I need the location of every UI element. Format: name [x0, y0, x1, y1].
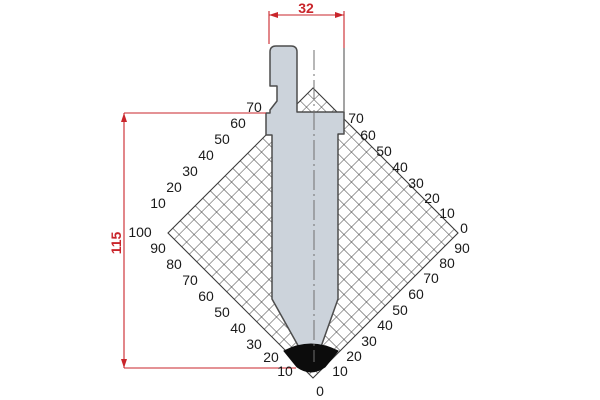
drawing-canvas: 7060504030201010090807060504030201001020… [0, 0, 600, 400]
arrow-left-icon [269, 12, 278, 18]
arrow-down-icon [121, 359, 127, 368]
arrow-right-icon [335, 12, 344, 18]
width-dimension [269, 11, 344, 48]
arrow-up-icon [121, 113, 127, 122]
technical-drawing-svg [0, 0, 600, 400]
